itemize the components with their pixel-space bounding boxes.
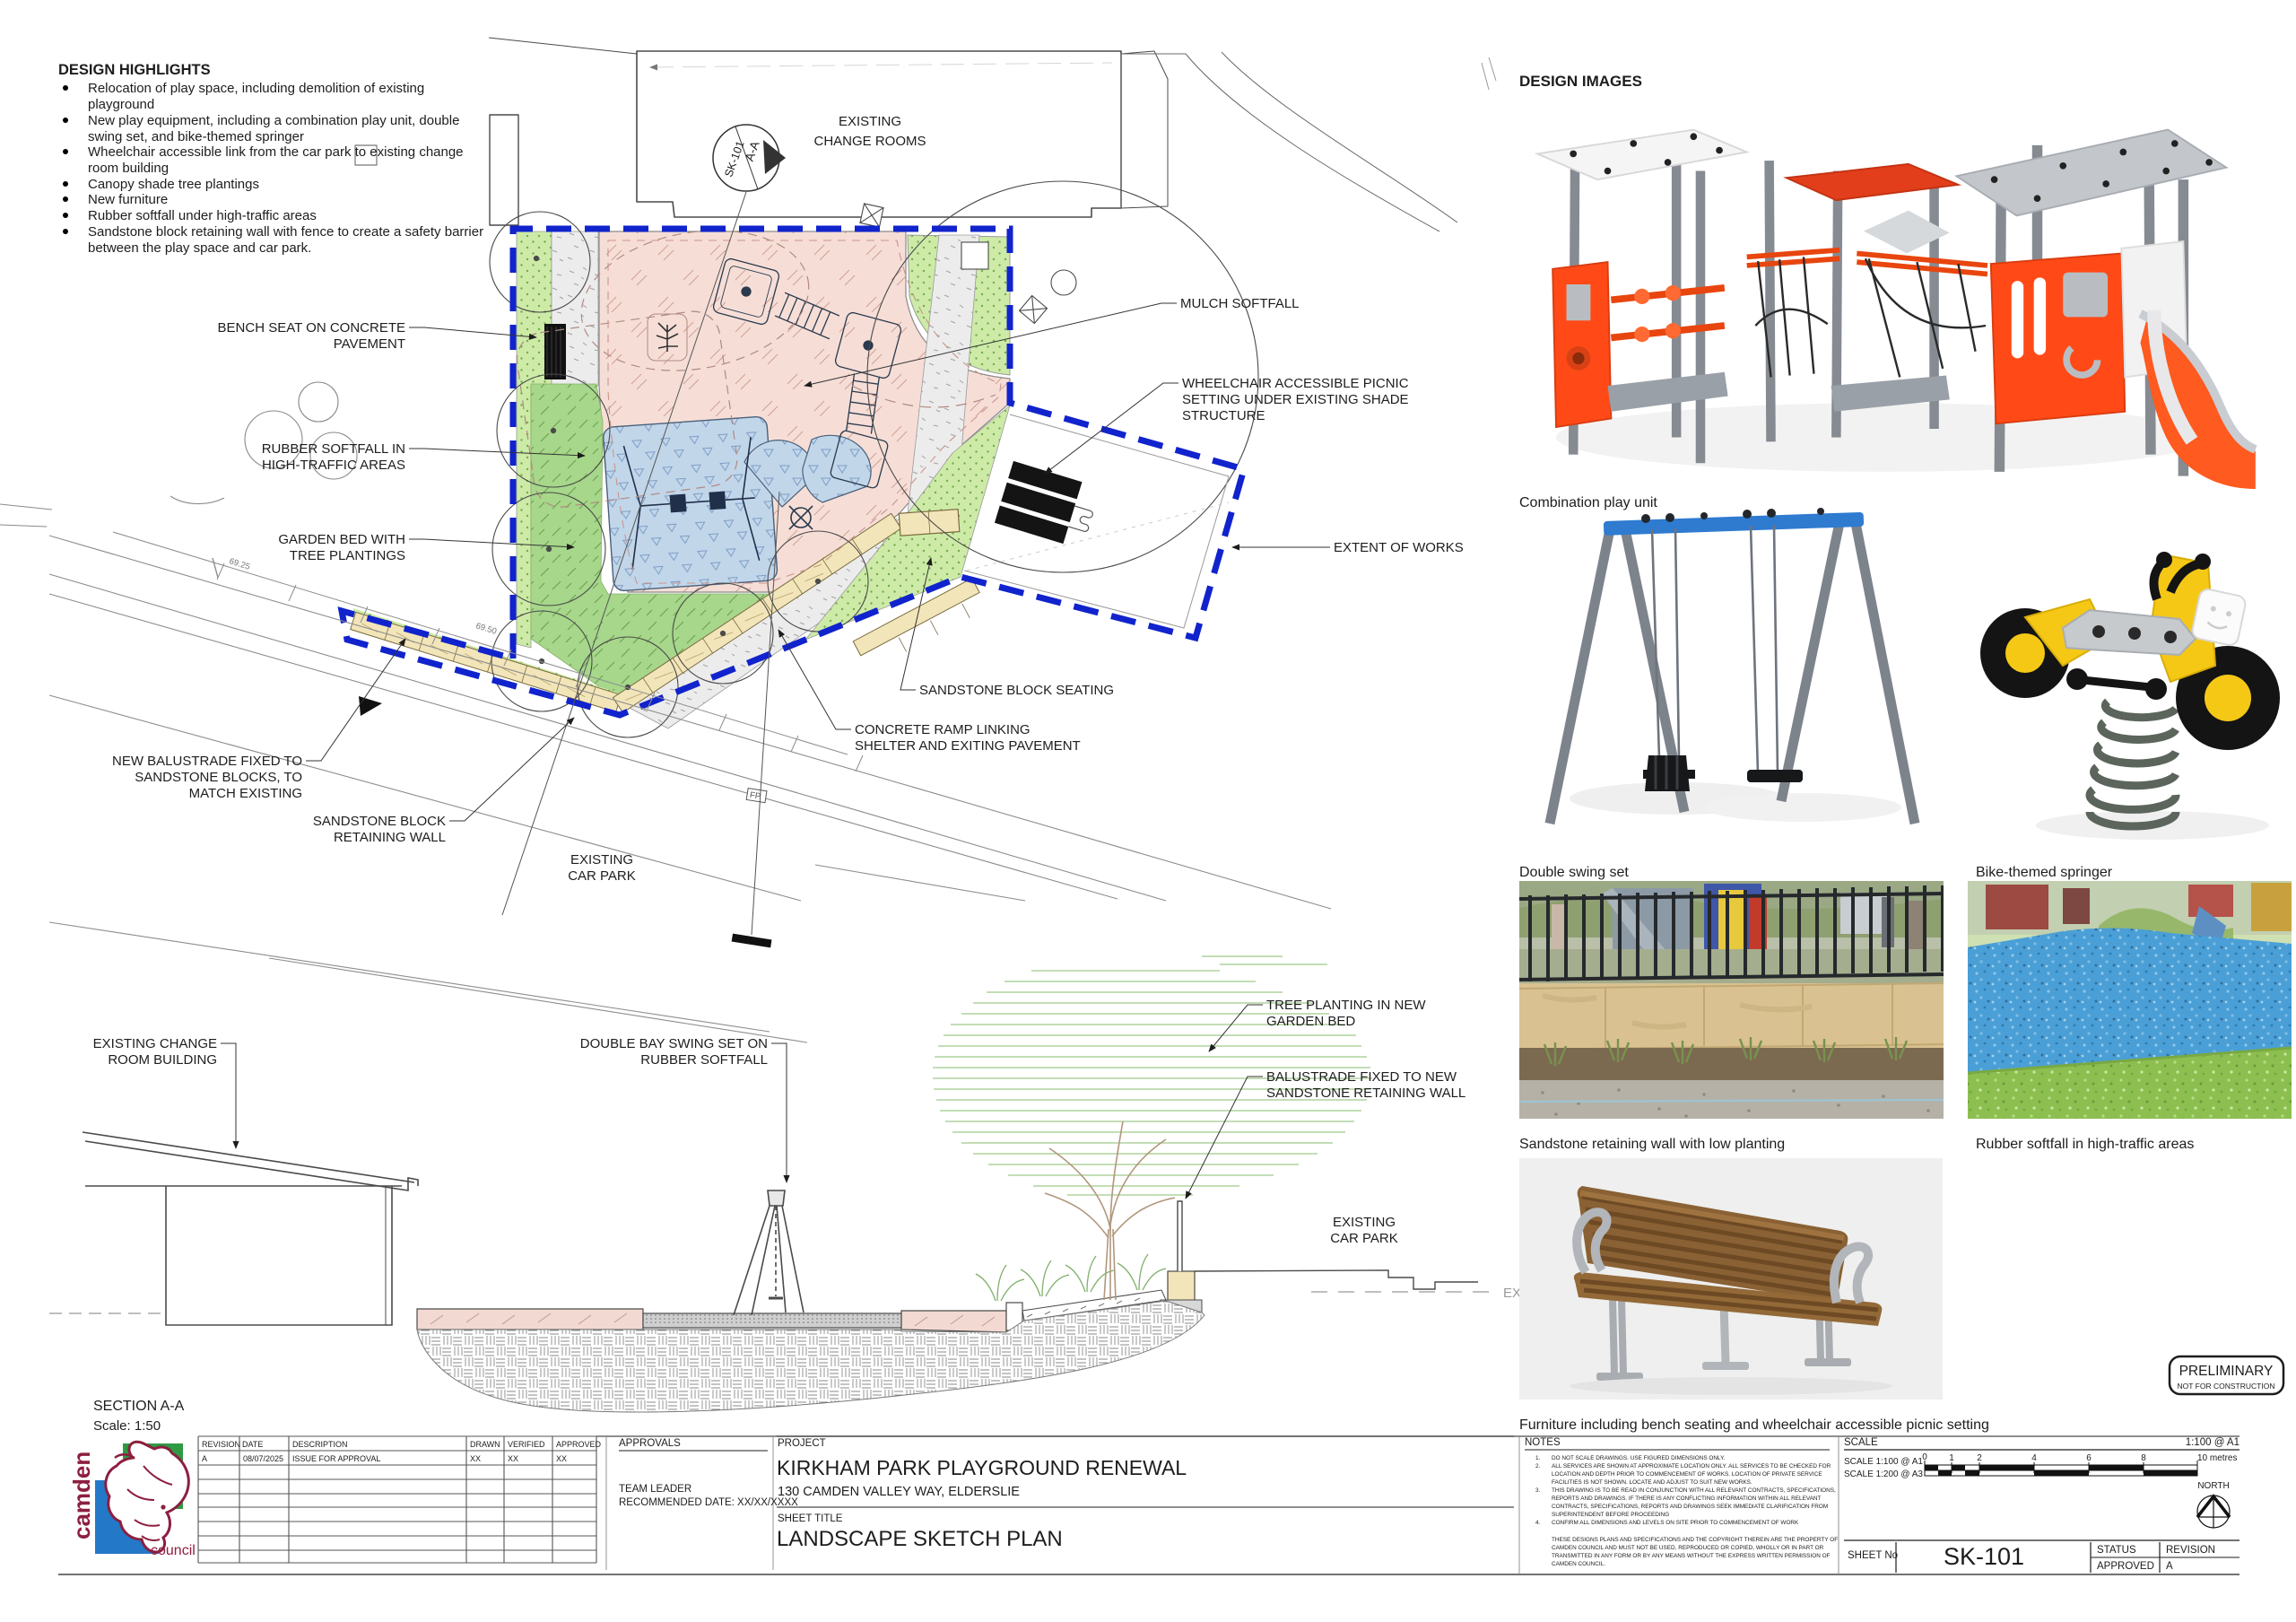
- svg-text:130 CAMDEN VALLEY WAY, ELDERSL: 130 CAMDEN VALLEY WAY, ELDERSLIE: [778, 1485, 1020, 1499]
- svg-text:KIRKHAM PARK PLAYGROUND RENEWA: KIRKHAM PARK PLAYGROUND RENEWAL: [777, 1456, 1187, 1479]
- svg-text:2.: 2.: [1535, 1463, 1541, 1469]
- svg-text:CAR PARK: CAR PARK: [1330, 1231, 1398, 1246]
- svg-text:Wheelchair accessible link fro: Wheelchair accessible link from the car …: [88, 144, 464, 160]
- svg-text:EXISTING: EXISTING: [839, 114, 901, 129]
- svg-text:DESIGN IMAGES: DESIGN IMAGES: [1519, 73, 1642, 90]
- svg-text:EXISTING: EXISTING: [570, 852, 633, 868]
- svg-text:FACILITIES IS NOT SHOWN. LOCAT: FACILITIES IS NOT SHOWN. LOCATE AND ADJU…: [1552, 1479, 1752, 1486]
- svg-text:TREE PLANTINGS: TREE PLANTINGS: [290, 548, 405, 563]
- svg-text:A: A: [202, 1454, 207, 1463]
- svg-text:DESIGN HIGHLIGHTS: DESIGN HIGHLIGHTS: [58, 62, 211, 78]
- svg-text:4: 4: [2031, 1453, 2037, 1463]
- svg-text:SCALE 1:200 @ A3: SCALE 1:200 @ A3: [1844, 1469, 1923, 1479]
- svg-text:APPROVED: APPROVED: [556, 1440, 602, 1449]
- svg-text:SANDSTONE BLOCK: SANDSTONE BLOCK: [313, 814, 446, 829]
- svg-text:room building: room building: [88, 161, 169, 176]
- svg-text:GARDEN BED: GARDEN BED: [1266, 1014, 1355, 1029]
- svg-text:SANDSTONE BLOCKS, TO: SANDSTONE BLOCKS, TO: [135, 770, 302, 785]
- svg-text:between the play space and car: between the play space and car park.: [88, 240, 311, 256]
- svg-text:THESE DESIGNS PLANS AND SPECIF: THESE DESIGNS PLANS AND SPECIFICATIONS A…: [1552, 1537, 1838, 1543]
- svg-text:CONCRETE RAMP LINKING: CONCRETE RAMP LINKING: [855, 722, 1031, 737]
- svg-text:SANDSTONE BLOCK SEATING: SANDSTONE BLOCK SEATING: [919, 683, 1114, 698]
- svg-text:RUBBER SOFTFALL: RUBBER SOFTFALL: [640, 1052, 768, 1068]
- svg-text:10 metres: 10 metres: [2197, 1453, 2237, 1463]
- svg-text:CONFIRM ALL DIMENSIONS AND LEV: CONFIRM ALL DIMENSIONS AND LEVELS ON SIT…: [1552, 1520, 1799, 1526]
- svg-text:6: 6: [2086, 1453, 2092, 1463]
- svg-text:CONTRACTS, SPECIFICATIONS, REP: CONTRACTS, SPECIFICATIONS, REPORTS AND D…: [1552, 1504, 1828, 1510]
- svg-text:Rubber softfall under high-tra: Rubber softfall under high-traffic areas: [88, 208, 317, 223]
- svg-text:PRELIMINARY: PRELIMINARY: [2179, 1364, 2274, 1379]
- svg-text:SCALE: SCALE: [1844, 1437, 1878, 1448]
- svg-text:TRANSMITTED IN ANY FORM OR BY: TRANSMITTED IN ANY FORM OR BY ANY MEANS …: [1552, 1553, 1831, 1559]
- svg-text:NORTH: NORTH: [2197, 1481, 2229, 1491]
- svg-text:HIGH-TRAFFIC AREAS: HIGH-TRAFFIC AREAS: [262, 458, 405, 473]
- svg-text:BALUSTRADE FIXED TO NEW: BALUSTRADE FIXED TO NEW: [1266, 1069, 1457, 1085]
- svg-text:MATCH EXISTING: MATCH EXISTING: [189, 786, 302, 801]
- svg-text:1:100 @ A1: 1:100 @ A1: [2186, 1437, 2239, 1448]
- svg-text:Canopy shade tree plantings: Canopy shade tree plantings: [88, 177, 259, 192]
- svg-text:SUPERINTENDENT BEFORE PROCEEDI: SUPERINTENDENT BEFORE PROCEEDING: [1552, 1512, 1669, 1518]
- svg-text:TEAM LEADER: TEAM LEADER: [619, 1484, 691, 1495]
- svg-text:A: A: [2166, 1561, 2173, 1572]
- svg-text:Sandstone retaining wall with: Sandstone retaining wall with low planti…: [1519, 1137, 1785, 1152]
- svg-text:Rubber softfall in high-traffi: Rubber softfall in high-traffic areas: [1976, 1137, 2194, 1152]
- svg-text:SANDSTONE RETAINING WALL: SANDSTONE RETAINING WALL: [1266, 1086, 1465, 1101]
- svg-text:LANDSCAPE SKETCH PLAN: LANDSCAPE SKETCH PLAN: [777, 1527, 1063, 1551]
- svg-text:STATUS: STATUS: [2097, 1545, 2136, 1556]
- svg-text:PAVEMENT: PAVEMENT: [334, 336, 405, 352]
- svg-text:DESCRIPTION: DESCRIPTION: [292, 1440, 348, 1449]
- svg-text:CHANGE ROOMS: CHANGE ROOMS: [813, 134, 926, 149]
- svg-text:SK-101: SK-101: [1944, 1543, 2024, 1570]
- svg-text:CAMDEN COUNCIL AND MUST NOT BE: CAMDEN COUNCIL AND MUST NOT BE USED, REP…: [1552, 1545, 1824, 1551]
- svg-text:EXISTING: EXISTING: [1333, 1215, 1396, 1230]
- svg-text:REVISION: REVISION: [202, 1440, 240, 1449]
- svg-text:APPROVED: APPROVED: [2097, 1561, 2154, 1572]
- svg-text:ROOM BUILDING: ROOM BUILDING: [108, 1052, 217, 1068]
- svg-text:REVISION: REVISION: [2166, 1545, 2215, 1556]
- svg-text:XX: XX: [508, 1454, 518, 1463]
- svg-text:Scale: 1:50: Scale: 1:50: [93, 1418, 161, 1434]
- svg-text:Combination play unit: Combination play unit: [1519, 495, 1657, 510]
- svg-text:CAMDEN COUNCIL.: CAMDEN COUNCIL.: [1552, 1561, 1605, 1567]
- svg-text:TREE PLANTING IN NEW: TREE PLANTING IN NEW: [1266, 998, 1426, 1013]
- svg-text:VERIFIED: VERIFIED: [508, 1440, 545, 1449]
- svg-text:THIS DRAWING IS TO BE READ IN: THIS DRAWING IS TO BE READ IN CONJUNCTIO…: [1552, 1487, 1836, 1494]
- svg-text:NOT FOR CONSTRUCTION: NOT FOR CONSTRUCTION: [2178, 1382, 2275, 1391]
- svg-text:4.: 4.: [1535, 1520, 1541, 1526]
- svg-text:SECTION A-A: SECTION A-A: [93, 1399, 185, 1414]
- svg-text:camden: camden: [68, 1452, 95, 1539]
- svg-text:NEW BALUSTRADE FIXED TO: NEW BALUSTRADE FIXED TO: [112, 754, 302, 769]
- svg-text:PROJECT: PROJECT: [778, 1438, 826, 1449]
- svg-text:ISSUE FOR APPROVAL: ISSUE FOR APPROVAL: [292, 1454, 380, 1463]
- svg-text:1: 1: [1949, 1453, 1954, 1463]
- svg-text:New furniture: New furniture: [88, 192, 168, 207]
- svg-text:FP: FP: [749, 790, 761, 802]
- svg-text:BENCH SEAT ON CONCRETE: BENCH SEAT ON CONCRETE: [218, 320, 405, 336]
- svg-text:playground: playground: [88, 97, 154, 112]
- svg-text:SHEET No: SHEET No: [1848, 1550, 1898, 1561]
- svg-text:Bike-themed springer: Bike-themed springer: [1976, 865, 2113, 880]
- svg-text:08/07/2025: 08/07/2025: [243, 1454, 283, 1463]
- svg-text:EXTENT OF WORKS: EXTENT OF WORKS: [1334, 540, 1464, 555]
- svg-text:CAR PARK: CAR PARK: [568, 868, 636, 884]
- svg-text:council: council: [151, 1543, 196, 1558]
- svg-text:ALL SERVICES ARE SHOWN AT APPR: ALL SERVICES ARE SHOWN AT APPROXIMATE LO…: [1552, 1463, 1831, 1469]
- svg-text:SETTING UNDER EXISTING SHADE: SETTING UNDER EXISTING SHADE: [1182, 392, 1409, 407]
- svg-text:Furniture including bench seat: Furniture including bench seating and wh…: [1519, 1417, 1989, 1433]
- svg-text:DOUBLE BAY SWING SET ON: DOUBLE BAY SWING SET ON: [580, 1036, 768, 1051]
- svg-text:1.: 1.: [1535, 1455, 1541, 1461]
- svg-text:2: 2: [1977, 1453, 1982, 1463]
- svg-text:RUBBER SOFTFALL IN: RUBBER SOFTFALL IN: [262, 441, 405, 457]
- svg-text:DO NOT SCALE DRAWINGS. USE FIG: DO NOT SCALE DRAWINGS. USE FIGURED DIMEN…: [1552, 1455, 1726, 1461]
- svg-text:RECOMMENDED DATE: XX/XX/XXXX: RECOMMENDED DATE: XX/XX/XXXX: [619, 1497, 798, 1508]
- svg-text:DRAWN: DRAWN: [470, 1440, 500, 1449]
- svg-text:WHEELCHAIR ACCESSIBLE PICNIC: WHEELCHAIR ACCESSIBLE PICNIC: [1182, 376, 1409, 391]
- svg-text:GARDEN BED WITH: GARDEN BED WITH: [278, 532, 405, 547]
- svg-text:RETAINING WALL: RETAINING WALL: [334, 830, 446, 845]
- svg-text:STRUCTURE: STRUCTURE: [1182, 408, 1265, 423]
- svg-text:Sandstone block retaining wall: Sandstone block retaining wall with fenc…: [88, 224, 483, 240]
- svg-text:XX: XX: [556, 1454, 567, 1463]
- svg-text:SHELTER AND EXITING PAVEMENT: SHELTER AND EXITING PAVEMENT: [855, 738, 1081, 754]
- svg-text:NOTES: NOTES: [1525, 1437, 1561, 1448]
- svg-text:EXISTING CHANGE: EXISTING CHANGE: [93, 1036, 217, 1051]
- svg-text:Double swing set: Double swing set: [1519, 865, 1629, 880]
- svg-text:swing set, and bike-themed spr: swing set, and bike-themed springer: [88, 129, 304, 144]
- svg-text:DATE: DATE: [242, 1440, 263, 1449]
- svg-text:Relocation of play space, incl: Relocation of play space, including demo…: [88, 81, 424, 96]
- svg-text:New play equipment, including: New play equipment, including a combinat…: [88, 113, 459, 128]
- svg-text:APPROVALS: APPROVALS: [619, 1438, 681, 1449]
- svg-text:REPORTS AND DRAWINGS. IF THERE: REPORTS AND DRAWINGS. IF THERE IS ANY CO…: [1552, 1496, 1821, 1502]
- svg-text:SCALE 1:100 @ A1: SCALE 1:100 @ A1: [1844, 1457, 1923, 1467]
- svg-text:XX: XX: [470, 1454, 481, 1463]
- svg-text:MULCH SOFTFALL: MULCH SOFTFALL: [1180, 296, 1300, 311]
- svg-text:SHEET TITLE: SHEET TITLE: [778, 1513, 843, 1524]
- svg-text:LOCATION AND DEPTH PRIOR TO CO: LOCATION AND DEPTH PRIOR TO COMMENCEMENT…: [1552, 1471, 1822, 1478]
- svg-text:3.: 3.: [1535, 1487, 1541, 1494]
- svg-text:8: 8: [2141, 1453, 2146, 1463]
